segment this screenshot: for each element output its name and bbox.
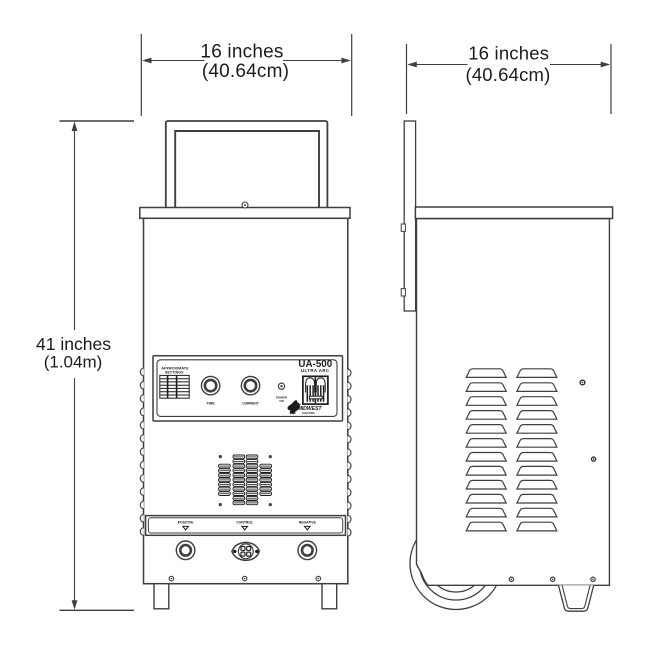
svg-text:ELECTRIC: ELECTRIC [302,411,315,415]
svg-text:NEGATIVE: NEGATIVE [299,521,317,525]
svg-text:ON: ON [279,399,284,403]
svg-text:41 inches: 41 inches [36,334,111,354]
svg-text:(40.64cm): (40.64cm) [465,64,550,85]
svg-text:(1.04m): (1.04m) [44,353,103,372]
svg-text:POSITIVE: POSITIVE [178,521,194,525]
svg-text:ULTRA ARC: ULTRA ARC [301,368,330,373]
svg-text:CONTROL: CONTROL [236,521,253,525]
svg-text:16 inches: 16 inches [468,43,549,64]
svg-text:16 inches: 16 inches [200,42,283,63]
svg-text:(40.64cm): (40.64cm) [202,61,289,82]
svg-text:SETTINGS: SETTINGS [165,370,184,374]
svg-text:TIME: TIME [207,401,216,405]
svg-text:CURRENT: CURRENT [242,401,260,405]
